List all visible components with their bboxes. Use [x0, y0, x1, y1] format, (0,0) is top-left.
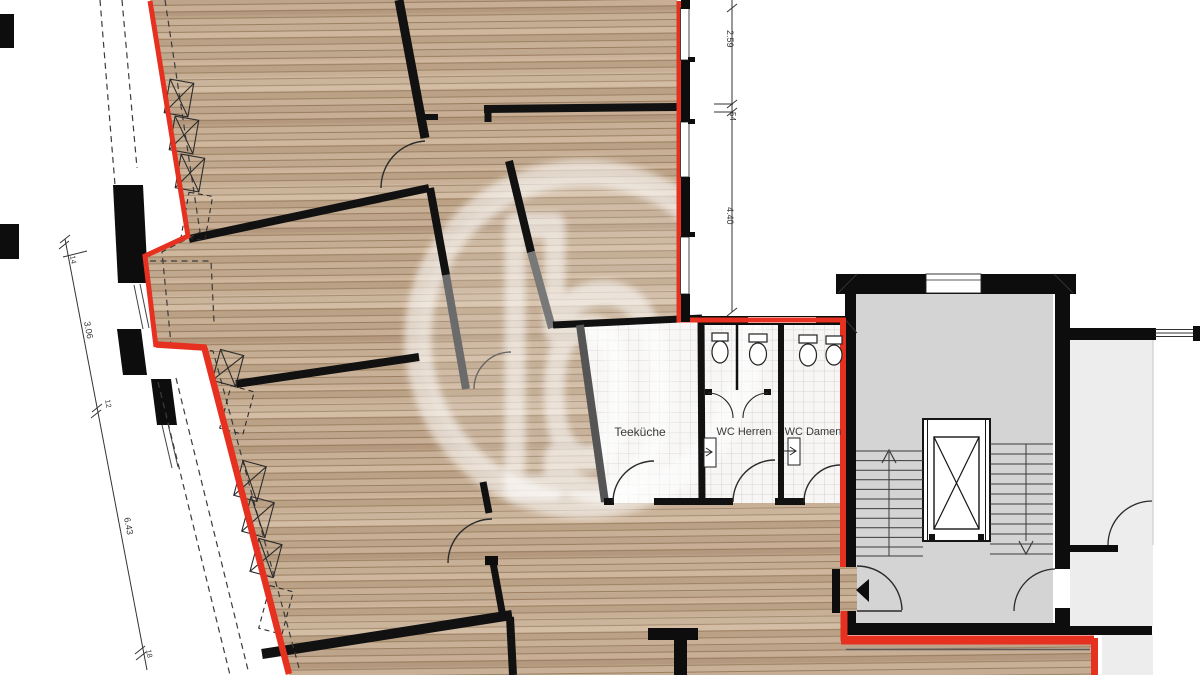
svg-text:4.40: 4.40	[725, 207, 735, 225]
svg-text:54: 54	[728, 112, 737, 121]
svg-text:18: 18	[144, 649, 154, 659]
svg-text:WC Damen: WC Damen	[785, 426, 842, 438]
svg-text:Teeküche: Teeküche	[614, 425, 666, 439]
svg-text:14: 14	[68, 255, 78, 265]
svg-text:2.59: 2.59	[725, 30, 735, 48]
svg-text:WC Herren: WC Herren	[716, 426, 771, 438]
svg-text:12: 12	[103, 399, 113, 409]
